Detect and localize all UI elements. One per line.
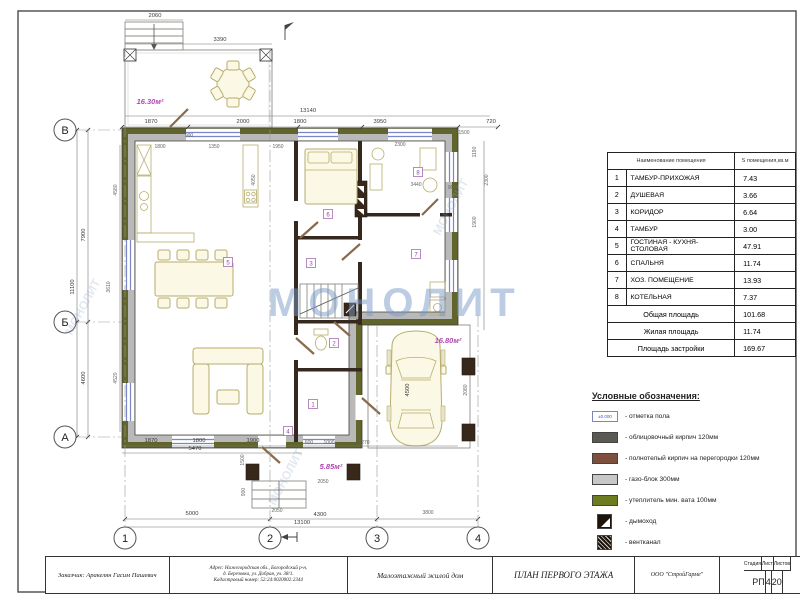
sheet-label: Лист <box>762 557 774 570</box>
legend-item: - утеплитель мин. вата 100мм <box>592 494 797 506</box>
room-name: СПАЛЬНЯ <box>626 255 735 272</box>
legend-label: - утеплитель мин. вата 100мм <box>625 497 717 504</box>
room-area: 11.74 <box>735 255 796 272</box>
axis-label: 4 <box>475 533 481 545</box>
total-value: 11.74 <box>735 323 796 340</box>
dimension-text: 4600 <box>81 372 87 385</box>
dimension-text: 1500 <box>240 454 246 465</box>
legend-label: - вентканал <box>625 539 661 546</box>
patio-table <box>210 61 256 107</box>
dimension-text: 5270 <box>358 440 369 446</box>
dimension-text: 4580 <box>113 184 119 195</box>
legend-item: ±0.000- отметка пола <box>592 410 797 422</box>
dimension-text: 900 <box>185 133 194 139</box>
dimension-text: 1870 <box>145 438 158 444</box>
chimney-icon <box>597 514 612 529</box>
room-name: ДУШЕВАЯ <box>626 187 735 204</box>
material-swatch <box>592 474 618 485</box>
dimension-text: 3950 <box>374 119 387 125</box>
object-name: Малоэтажный жилой дом <box>348 557 493 593</box>
table-row: 1ТАМБУР-ПРИХОЖАЯ7.43 <box>608 170 796 187</box>
drawing-sheet: ВБА1234206033901314018702000180039507209… <box>0 0 800 600</box>
room-name: КОТЕЛЬНАЯ <box>626 289 735 306</box>
room-index: 6 <box>608 255 627 272</box>
table-row: 6СПАЛЬНЯ11.74 <box>608 255 796 272</box>
sheets-label: Листов <box>774 557 791 570</box>
material-swatch <box>592 495 618 506</box>
terrace <box>124 22 272 128</box>
dimension-text: 13100 <box>294 520 310 526</box>
room-index: 3 <box>608 204 627 221</box>
room-index: 4 <box>608 221 627 238</box>
dimension-text: 5470 <box>189 446 202 452</box>
legend-item: - облицовочный кирпич 120мм <box>592 431 797 443</box>
legend-label: - дымоход <box>625 518 656 525</box>
dimension-text: 1950 <box>272 144 283 150</box>
dimension-text: 2050 <box>271 508 282 514</box>
chimney-triangle <box>601 518 610 527</box>
legend: Условные обозначения: ±0.000- отметка по… <box>592 391 797 557</box>
room-name: ТАМБУР <box>626 221 735 238</box>
dimension-text: 4500 <box>405 384 411 397</box>
table-row: 7ХОЗ. ПОМЕЩЕНИЕ13.93 <box>608 272 796 289</box>
dimension-text: 2080 <box>463 384 469 395</box>
dimension-text: 4300 <box>314 512 327 518</box>
total-value: 101.68 <box>735 306 796 323</box>
material-swatch <box>592 453 618 464</box>
dimension-text: 1900 <box>472 216 478 227</box>
dimension-text: 2000 <box>237 119 250 125</box>
room-index: 1 <box>608 170 627 187</box>
dimension-text: 2050 <box>317 479 328 485</box>
dimension-text: 1500 <box>458 130 469 136</box>
legend-item: - дымоход <box>592 515 797 527</box>
room-index: 2 <box>608 187 627 204</box>
room-index: 5 <box>608 238 627 255</box>
dimension-text: 4050 <box>251 174 257 185</box>
dimension-text: 1900 <box>247 438 260 444</box>
room-area: 3.66 <box>735 187 796 204</box>
dimension-text: 3610 <box>106 281 112 292</box>
room-name: ГОСТИНАЯ - КУХНЯ-СТОЛОВАЯ <box>626 238 735 255</box>
legend-item: - вентканал <box>592 536 797 548</box>
dimension-text: 1000 <box>323 440 334 446</box>
room-area: 3.00 <box>735 221 796 238</box>
room-table-body: 1ТАМБУР-ПРИХОЖАЯ7.432ДУШЕВАЯ3.663КОРИДОР… <box>608 170 796 357</box>
legend-label: - полнотелый кирпич на перегородки 120мм <box>625 455 760 462</box>
dimension-text: 2300 <box>484 174 490 185</box>
object-address: Адрес: Нижегородская обл., Богородский р… <box>170 557 348 593</box>
room-area: 7.43 <box>735 170 796 187</box>
dimension-text: 1350 <box>208 144 219 150</box>
legend-label: - газо-блок 300мм <box>625 476 680 483</box>
table-row: 5ГОСТИНАЯ - КУХНЯ-СТОЛОВАЯ47.91 <box>608 238 796 255</box>
table-row: 2ДУШЕВАЯ3.66 <box>608 187 796 204</box>
total-value: 169.67 <box>735 340 796 357</box>
dimension-text: 13140 <box>300 108 316 114</box>
dimension-text: 5000 <box>186 511 199 517</box>
dimension-text: 3800 <box>422 510 433 516</box>
dimension-text: 1870 <box>145 119 158 125</box>
entry-arrow-icon <box>281 532 297 542</box>
room-area: 13.93 <box>735 272 796 289</box>
legend-items: ±0.000- отметка пола- облицовочный кирпи… <box>592 410 797 548</box>
table-total-row: Жилая площадь11.74 <box>608 323 796 340</box>
table-row: 4ТАМБУР3.00 <box>608 221 796 238</box>
stage-value: РП <box>752 571 765 593</box>
dimension-text: 2060 <box>149 13 162 19</box>
drawing-title: ПЛАН ПЕРВОГО ЭТАЖА <box>493 557 635 593</box>
table-row: 8КОТЕЛЬНАЯ7.37 <box>608 289 796 306</box>
room-index: 8 <box>608 289 627 306</box>
vent-hatch <box>598 536 611 549</box>
dimension-text: 1800 <box>193 438 206 444</box>
dimension-text: 2300 <box>394 142 405 148</box>
legend-label: - отметка пола <box>625 413 670 420</box>
room-area-label: 16.80м² <box>435 336 462 345</box>
car <box>386 331 446 446</box>
elevation-flag-icon <box>285 22 294 40</box>
dimension-text: 720 <box>486 119 496 125</box>
dimension-text: 3440 <box>410 182 421 188</box>
axis-label: В <box>61 125 68 137</box>
axis-label: 2 <box>267 533 273 545</box>
dimension-text: 7900 <box>81 229 87 242</box>
room-area: 6.64 <box>735 204 796 221</box>
axis-label: 3 <box>374 533 380 545</box>
header-room-area: S помещения,кв.м <box>735 153 796 170</box>
table-header-row: Наименование помещения S помещения,кв.м <box>608 153 796 170</box>
title-block: Заказчик: Аракелян Гасим Пашевич Адрес: … <box>45 556 800 594</box>
dimension-text: 1190 <box>472 146 478 157</box>
company-name: ООО "СтройГарме" <box>635 557 720 593</box>
total-label: Жилая площадь <box>608 323 735 340</box>
legend-item: - газо-блок 300мм <box>592 473 797 485</box>
dimension-text: 3390 <box>214 37 227 43</box>
address-line: Кадастровый номер: 52:24:0020002:2344 <box>214 578 303 584</box>
client-name: Заказчик: Аракелян Гасим Пашевич <box>46 557 170 593</box>
header-room-name: Наименование помещения <box>608 153 735 170</box>
room-area: 7.37 <box>735 289 796 306</box>
total-label: Общая площадь <box>608 306 735 323</box>
total-label: Площадь застройки <box>608 340 735 357</box>
room-index: 7 <box>608 272 627 289</box>
legend-title: Условные обозначения: <box>592 391 797 401</box>
vent-channel-icon <box>597 535 612 550</box>
stage-label: Стадия <box>744 557 762 570</box>
legend-label: - облицовочный кирпич 120мм <box>625 434 718 441</box>
table-row: 3КОРИДОР6.64 <box>608 204 796 221</box>
room-name: ХОЗ. ПОМЕЩЕНИЕ <box>626 272 735 289</box>
table-total-row: Общая площадь101.68 <box>608 306 796 323</box>
room-area: 47.91 <box>735 238 796 255</box>
room-area-label: 16.30м² <box>137 97 164 106</box>
sheets-total: 20 <box>772 571 783 593</box>
room-area-label: 5.85м² <box>320 462 343 471</box>
dimension-text: 1800 <box>294 119 307 125</box>
table-total-row: Площадь застройки169.67 <box>608 340 796 357</box>
room-schedule-table: Наименование помещения S помещения,кв.м … <box>607 152 796 357</box>
dimension-text: 4520 <box>113 372 119 383</box>
axis-label: 1 <box>122 533 128 545</box>
floor-elevation-mark: ±0.000 <box>592 411 618 422</box>
axis-label: А <box>61 432 69 444</box>
legend-item: - полнотелый кирпич на перегородки 120мм <box>592 452 797 464</box>
watermark: МОНОЛИТ <box>268 281 522 326</box>
dimension-text: 900 <box>241 488 247 497</box>
dimension-text: 600 <box>305 440 314 446</box>
porch <box>246 464 360 508</box>
dimension-text: 1800 <box>154 144 165 150</box>
stage-block: Стадия Лист Листов РП 4 20 <box>720 557 800 593</box>
terrace-column-icon <box>124 49 272 61</box>
room-name: ТАМБУР-ПРИХОЖАЯ <box>626 170 735 187</box>
room-name: КОРИДОР <box>626 204 735 221</box>
dimension-text: 11100 <box>70 279 76 294</box>
material-swatch <box>592 432 618 443</box>
